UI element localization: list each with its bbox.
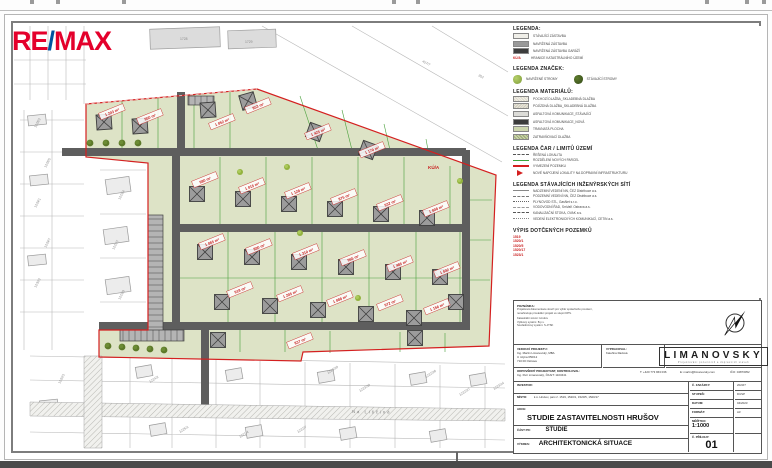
- legend-item: VYMEZENÍ POZEMKU: [513, 164, 761, 168]
- symbol-cadastral-note: KÚ/A: [513, 56, 527, 60]
- lead-address: 710 00 Ostrava: [517, 359, 598, 363]
- legend-item: TRAVNATÁ PLOCHA: [513, 126, 761, 132]
- legend-item: NOVÉ NAPOJENÍ LOKALITY NA DOPRAVNÍ INFRA…: [513, 170, 761, 176]
- action-label: AKCE:: [517, 407, 526, 411]
- drawing-label: VÝKRES:: [517, 442, 530, 446]
- place-value: k.ú. Hrušov, parc.č. 1519, 1520/1, 1520/…: [534, 395, 599, 399]
- investor-label: INVESTOR:: [517, 383, 533, 387]
- svg-text:1222/26: 1222/26: [424, 369, 437, 379]
- legend-materials-title: LEGENDA MATERIÁLŮ:: [513, 89, 761, 95]
- note-line: nenahrazuje prováděcí projekt ve stupni …: [517, 312, 697, 316]
- stage-label: STUPEŇ:: [692, 392, 705, 396]
- svg-text:1225/1: 1225/1: [178, 425, 189, 434]
- attachment-value: 01: [692, 439, 731, 451]
- legend-item: ASFALTOVÁ KOMUNIKACE_STÁVAJÍCÍ: [513, 111, 761, 117]
- existing-tree-icon: [574, 75, 583, 84]
- order-value: 2023/7: [737, 383, 746, 387]
- legend-item: POCHOZÍ DLAŽBA_SKLADEBNÁ DLAŽBA: [513, 96, 761, 102]
- legend-lines-title: LEGENDA ČAR / LIMITŮ ÚZEMÍ: [513, 146, 761, 152]
- swatch-material: [513, 111, 529, 117]
- legend-item: NAVRŽENÁ ZÁSTAVBA: [513, 41, 761, 47]
- proposed-tree-icon: [513, 75, 522, 84]
- legend-item: PODZEMNÍ VEDENÍ NN, ČEZ Distribuce a.s.: [513, 194, 761, 198]
- line-symbol-dashed: [513, 154, 529, 155]
- arrow-symbol: [517, 170, 523, 176]
- date-value: 04/2023: [737, 401, 747, 405]
- legend-panel: LEGENDA: STÁVAJÍCÍ ZÁSTAVBA NAVRŽENÁ ZÁS…: [513, 26, 761, 298]
- legend-item: VODOVODNÍ ŘAD, SmVaK Ostrava a.s.: [513, 205, 761, 209]
- title-block: POZNÁMKA: Projektová dokumentace slouží …: [513, 300, 762, 454]
- svg-text:1229/7: 1229/7: [43, 237, 51, 248]
- note-line: Souřadnicový systém: S-JTSK: [517, 324, 697, 328]
- legend-item: STÁVAJÍCÍ ZÁSTAVBA: [513, 33, 761, 39]
- swatch-proposed-buildings: [513, 41, 529, 47]
- author-name: Kateřina Radová: [606, 351, 661, 355]
- street-name-label: Na Liščině: [352, 409, 392, 415]
- firm-logo: LIMANOVSKY Projektování pozemních a dopr…: [659, 347, 768, 366]
- scale-value: 1:1000: [692, 423, 731, 429]
- swatch-material: [513, 126, 529, 132]
- legend-main-title: LEGENDA:: [513, 26, 761, 32]
- screenshot-root: { "logo": {"re": "RE", "slash": "/", "ma…: [0, 0, 772, 468]
- legend-marks-title: LEGENDA ZNAČEK:: [513, 66, 761, 72]
- remax-logo: RE/MAX: [12, 28, 111, 55]
- legend-networks-title: LEGENDA STÁVAJÍCÍCH INŽENÝRSKÝCH SÍTÍ: [513, 182, 761, 188]
- legend-item: ROZDĚLENÍ NOVÝCH PARCEL: [513, 158, 761, 162]
- svg-text:1222/27: 1222/27: [458, 387, 471, 397]
- email: E: martin@limanovsky.com: [680, 370, 715, 374]
- swatch-material: [513, 103, 529, 109]
- utility-line-symbol: [513, 196, 529, 197]
- legend-item: NAVRŽENÁ ZÁSTAVBA GARÁŽÍ: [513, 48, 761, 54]
- svg-text:302: 302: [478, 73, 485, 79]
- svg-text:1223/38: 1223/38: [358, 383, 371, 393]
- place-label: MÍSTO:: [517, 395, 527, 399]
- part-label: ČÁST PD:: [517, 428, 531, 432]
- utility-line-symbol: [513, 201, 529, 202]
- svg-text:1220/3: 1220/3: [57, 373, 65, 384]
- legend-item: ŘEŠENÁ LOKALITA: [513, 153, 761, 157]
- legend-item: KÚ/AHRANICE KATASTRÁLNÍHO ÚZEMÍ: [513, 56, 761, 60]
- legend-item: KANALIZAČNÍ STOKA, OVAK a.s.: [513, 211, 761, 215]
- logo-max: MAX: [54, 26, 111, 56]
- svg-text:1729: 1729: [245, 40, 253, 44]
- svg-text:1228/5: 1228/5: [43, 157, 51, 168]
- order-label: Č. ZAKÁZKY:: [692, 383, 710, 387]
- legend-item: POJÍZDNÁ DLAŽBA_SKLADEBNÁ DLAŽBA: [513, 103, 761, 109]
- svg-text:1222/7: 1222/7: [296, 425, 307, 434]
- legend-item: ASFALTOVÁ KOMUNIKACE_NOVÁ: [513, 119, 761, 125]
- stage-value: DUSP: [737, 392, 745, 396]
- drawing-value: ARCHITEKTONICKÁ SITUACE: [539, 440, 632, 447]
- legend-item: ZATRAVŇOVACÍ DLAŽBA: [513, 134, 761, 140]
- phone: T: +420 773 963 036: [640, 370, 666, 374]
- utility-line-symbol: [513, 212, 529, 213]
- swatch-proposed-garages: [513, 48, 529, 54]
- firm-name: LIMANOVSKY: [664, 350, 763, 361]
- svg-text:1223/14: 1223/14: [492, 381, 505, 391]
- swatch-material: [513, 96, 529, 102]
- part-value: STUDIE: [546, 427, 568, 433]
- line-symbol-red: [513, 165, 529, 167]
- affected-parcel: 1523/1: [513, 253, 761, 258]
- responsible-name: Ing. Petr Limanovský, ČKAIT: 1103441: [517, 373, 637, 377]
- svg-text:457/7: 457/7: [422, 59, 431, 67]
- existing-buildings-top: [150, 27, 277, 49]
- north-arrow-icon: [714, 303, 756, 343]
- utility-line-symbol: [513, 207, 529, 208]
- logo-re: RE: [12, 26, 48, 56]
- swatch-existing-buildings: [513, 33, 529, 39]
- svg-text:1728: 1728: [180, 37, 188, 41]
- legend-item: PLYNOVOD STL, GasNet s.r.o.: [513, 200, 761, 204]
- utility-line-symbol: [513, 190, 529, 191]
- action-value: STUDIE ZASTAVITELNOSTI HRUŠOV: [527, 413, 685, 422]
- svg-text:1230/2: 1230/2: [33, 277, 41, 288]
- line-symbol-green: [513, 160, 529, 161]
- utility-line-symbol: [513, 218, 529, 219]
- format-value: A3: [737, 410, 741, 414]
- swatch-material: [513, 134, 529, 140]
- legend-item: NADZEMNÍ VEDENÍ NN, ČEZ Distribuce a.s.: [513, 189, 761, 193]
- format-label: FORMÁT:: [692, 410, 705, 414]
- company-id: IČO: 04873052: [730, 370, 750, 374]
- date-label: DATUM:: [692, 401, 703, 405]
- cadastral-area-note: KÚ/A: [428, 164, 440, 170]
- affected-parcels-title: VÝPIS DOTČENÝCH POZEMKŮ: [513, 228, 761, 234]
- svg-text:1229/1: 1229/1: [33, 197, 41, 208]
- legend-item: VEDENÍ ELEKTRONICKÝCH KOMUNIKACÍ, CETIN …: [513, 217, 761, 221]
- firm-subtitle: Projektování pozemních a dopravních stav…: [664, 362, 763, 364]
- swatch-material: [513, 119, 529, 125]
